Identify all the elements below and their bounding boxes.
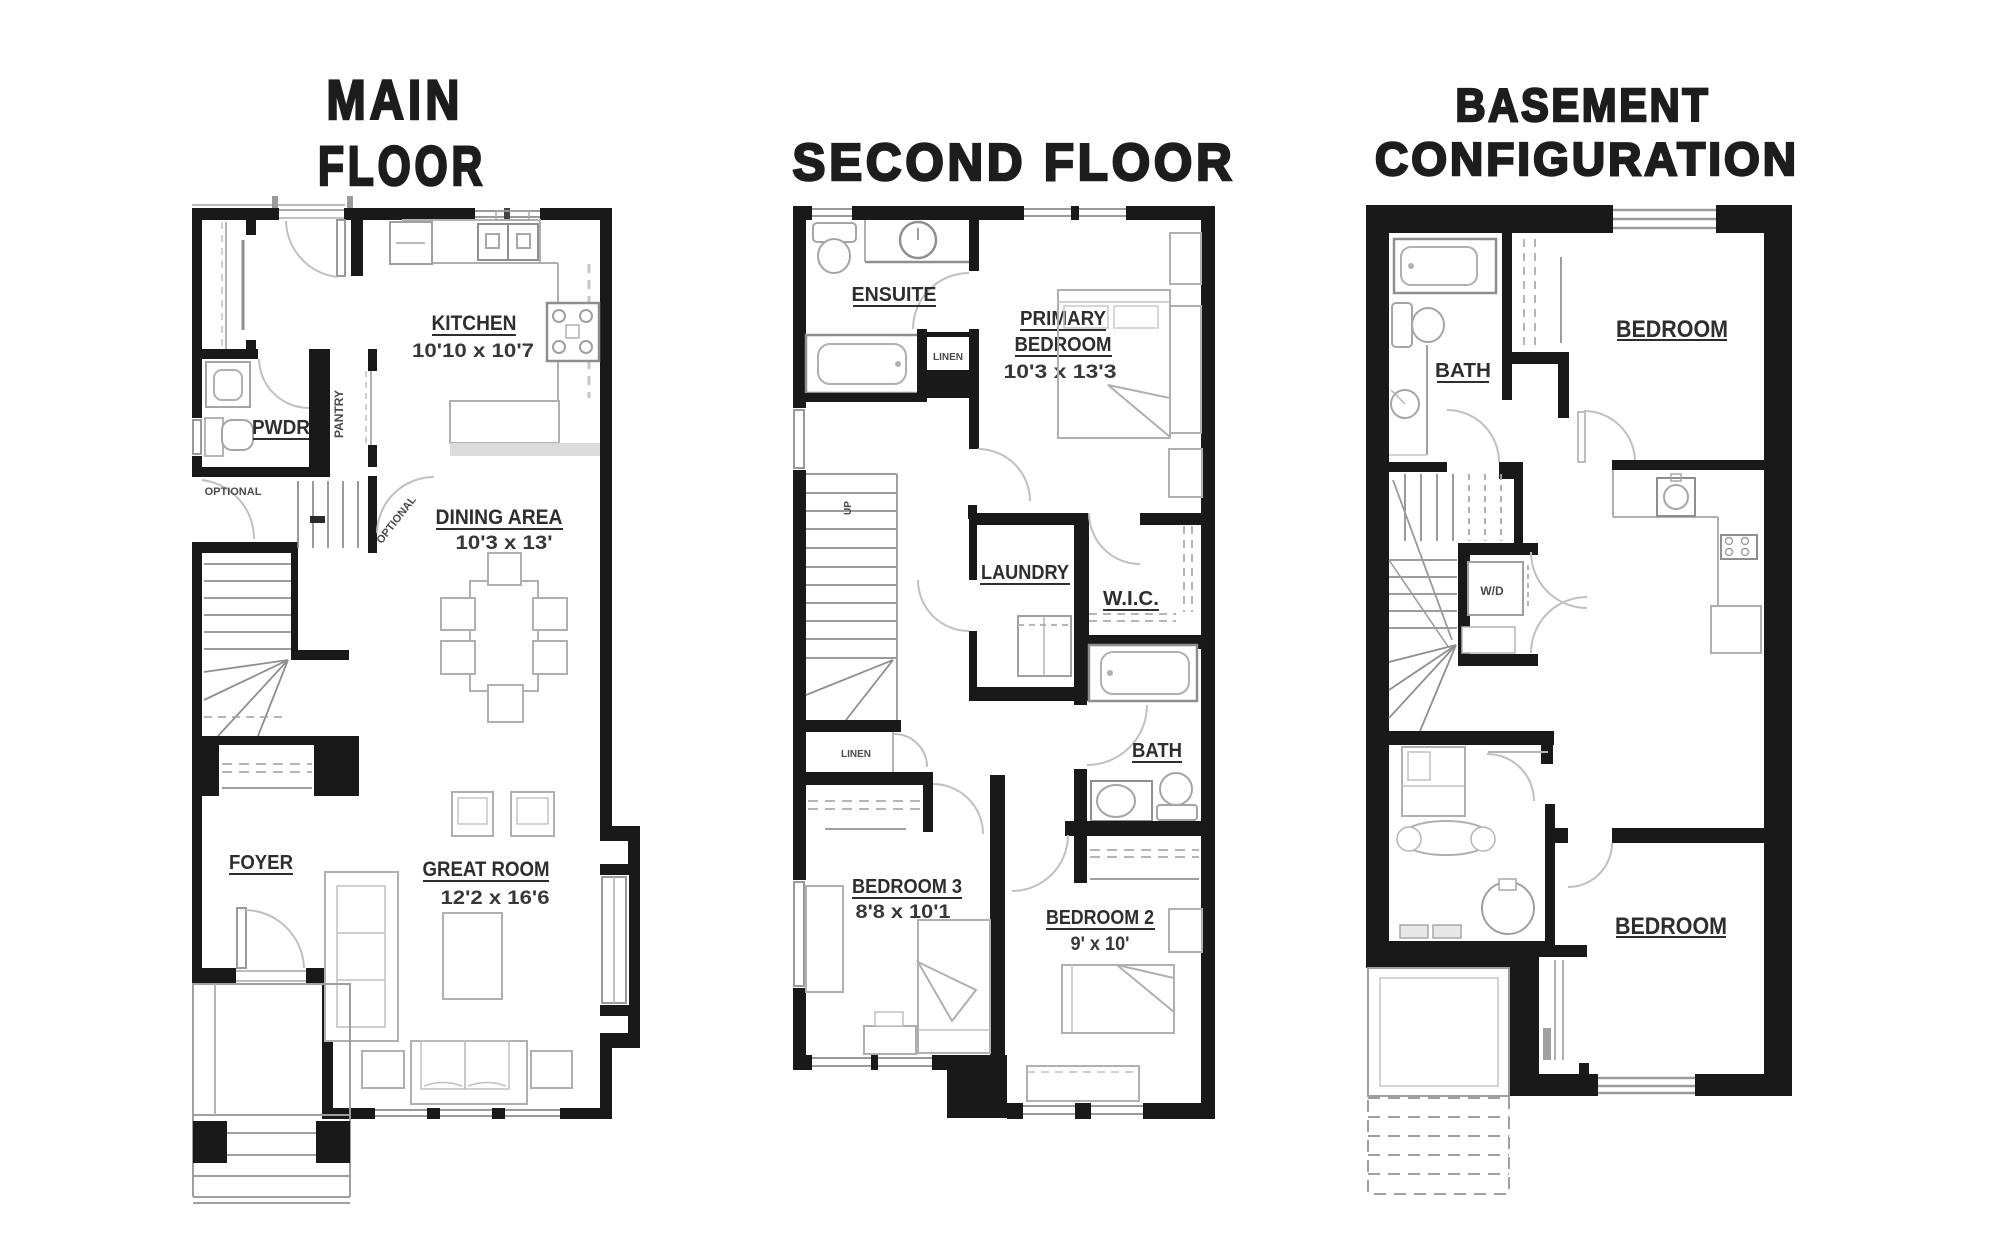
svg-text:MAIN: MAIN [327,68,464,131]
svg-text:9' x 10': 9' x 10' [1071,934,1130,955]
svg-text:UP: UP [843,501,854,515]
svg-text:DINING AREA: DINING AREA [436,506,563,529]
svg-text:BEDROOM: BEDROOM [1616,316,1728,343]
svg-text:GREAT ROOM: GREAT ROOM [423,858,550,881]
svg-text:BEDROOM 2: BEDROOM 2 [1046,907,1154,929]
svg-text:10'10 x 10'7: 10'10 x 10'7 [412,341,534,362]
svg-text:W/D: W/D [1480,584,1504,598]
svg-text:W.I.C.: W.I.C. [1103,588,1159,610]
svg-text:LINEN: LINEN [933,352,963,363]
svg-text:OPTIONAL: OPTIONAL [205,486,262,498]
svg-text:SECOND FLOOR: SECOND FLOOR [793,134,1236,192]
svg-text:BEDROOM 3: BEDROOM 3 [852,876,962,898]
svg-text:KITCHEN: KITCHEN [432,312,517,335]
svg-text:LINEN: LINEN [841,749,871,760]
svg-text:BEDROOM: BEDROOM [1615,913,1727,940]
svg-text:PANTRY: PANTRY [332,390,346,438]
svg-text:FLOOR: FLOOR [318,134,486,197]
svg-text:BEDROOM: BEDROOM [1015,334,1112,356]
svg-text:LAUNDRY: LAUNDRY [981,562,1070,584]
svg-text:BATH: BATH [1435,360,1491,382]
svg-text:BATH: BATH [1132,740,1182,762]
svg-text:FOYER: FOYER [229,852,294,874]
svg-text:CONFIGURATION: CONFIGURATION [1375,133,1799,185]
svg-text:BASEMENT: BASEMENT [1456,79,1711,131]
svg-text:10'3 x 13': 10'3 x 13' [456,533,553,554]
svg-text:10'3 x 13'3: 10'3 x 13'3 [1004,362,1117,383]
svg-text:ENSUITE: ENSUITE [852,284,937,306]
svg-text:PWDR: PWDR [252,417,311,439]
svg-text:12'2 x 16'6: 12'2 x 16'6 [441,888,550,909]
